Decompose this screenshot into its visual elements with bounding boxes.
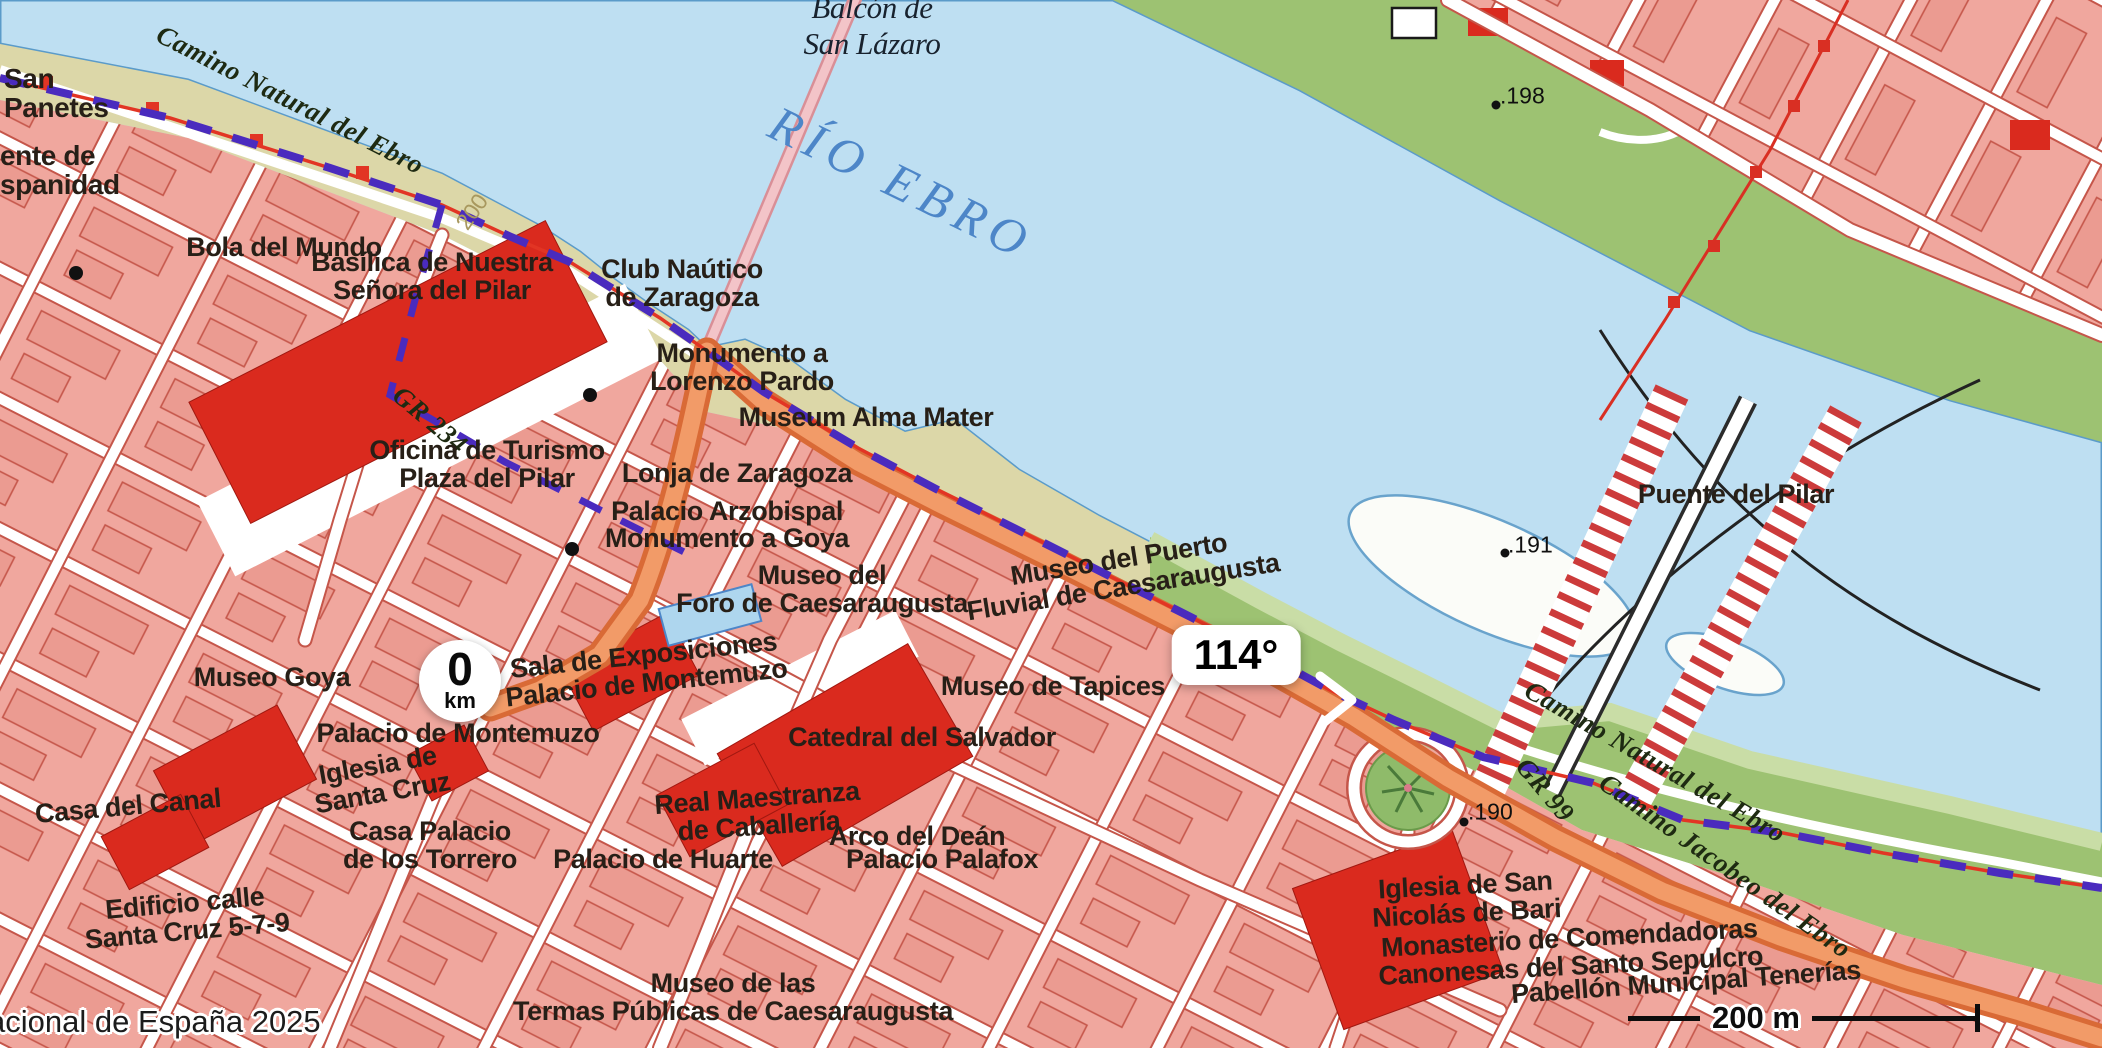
route-start-distance: 0	[447, 650, 473, 689]
scale-bar-end-tick	[1975, 1004, 1980, 1032]
bearing-badge: 114°	[1172, 625, 1301, 685]
map-artwork	[0, 0, 2102, 1048]
route-start-unit: km	[444, 690, 476, 712]
scale-bar-label: 200 m	[1712, 1000, 1800, 1036]
attribution: acional de España 2025	[0, 1004, 321, 1040]
route-start-marker[interactable]: 0 km	[419, 640, 501, 722]
map-canvas[interactable]: San Panetesente de spanidadCamino Natura…	[0, 0, 2102, 1048]
scale-bar: 200 m	[1628, 1000, 1980, 1036]
scale-bar-left-segment	[1628, 1016, 1700, 1021]
scale-bar-right-segment	[1812, 1016, 1980, 1021]
